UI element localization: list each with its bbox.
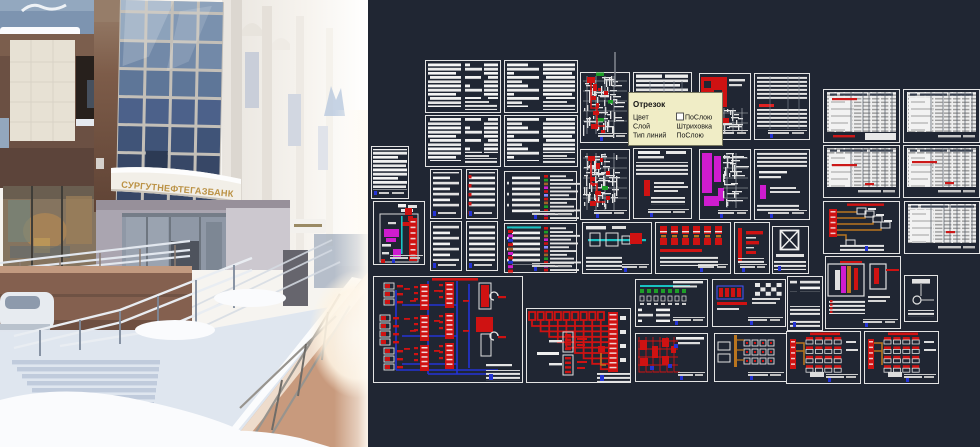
svg-text:Тип линий: Тип линий [633,132,666,140]
svg-text:ПоСлою: ПоСлою [677,133,704,140]
svg-text:Цвет: Цвет [633,115,649,122]
svg-text:Штриховка: Штриховка [677,124,713,131]
svg-text:Отрезок: Отрезок [633,100,666,109]
svg-text:Слой: Слой [633,123,650,131]
svg-text:ПоСлою: ПоСлою [685,115,712,122]
